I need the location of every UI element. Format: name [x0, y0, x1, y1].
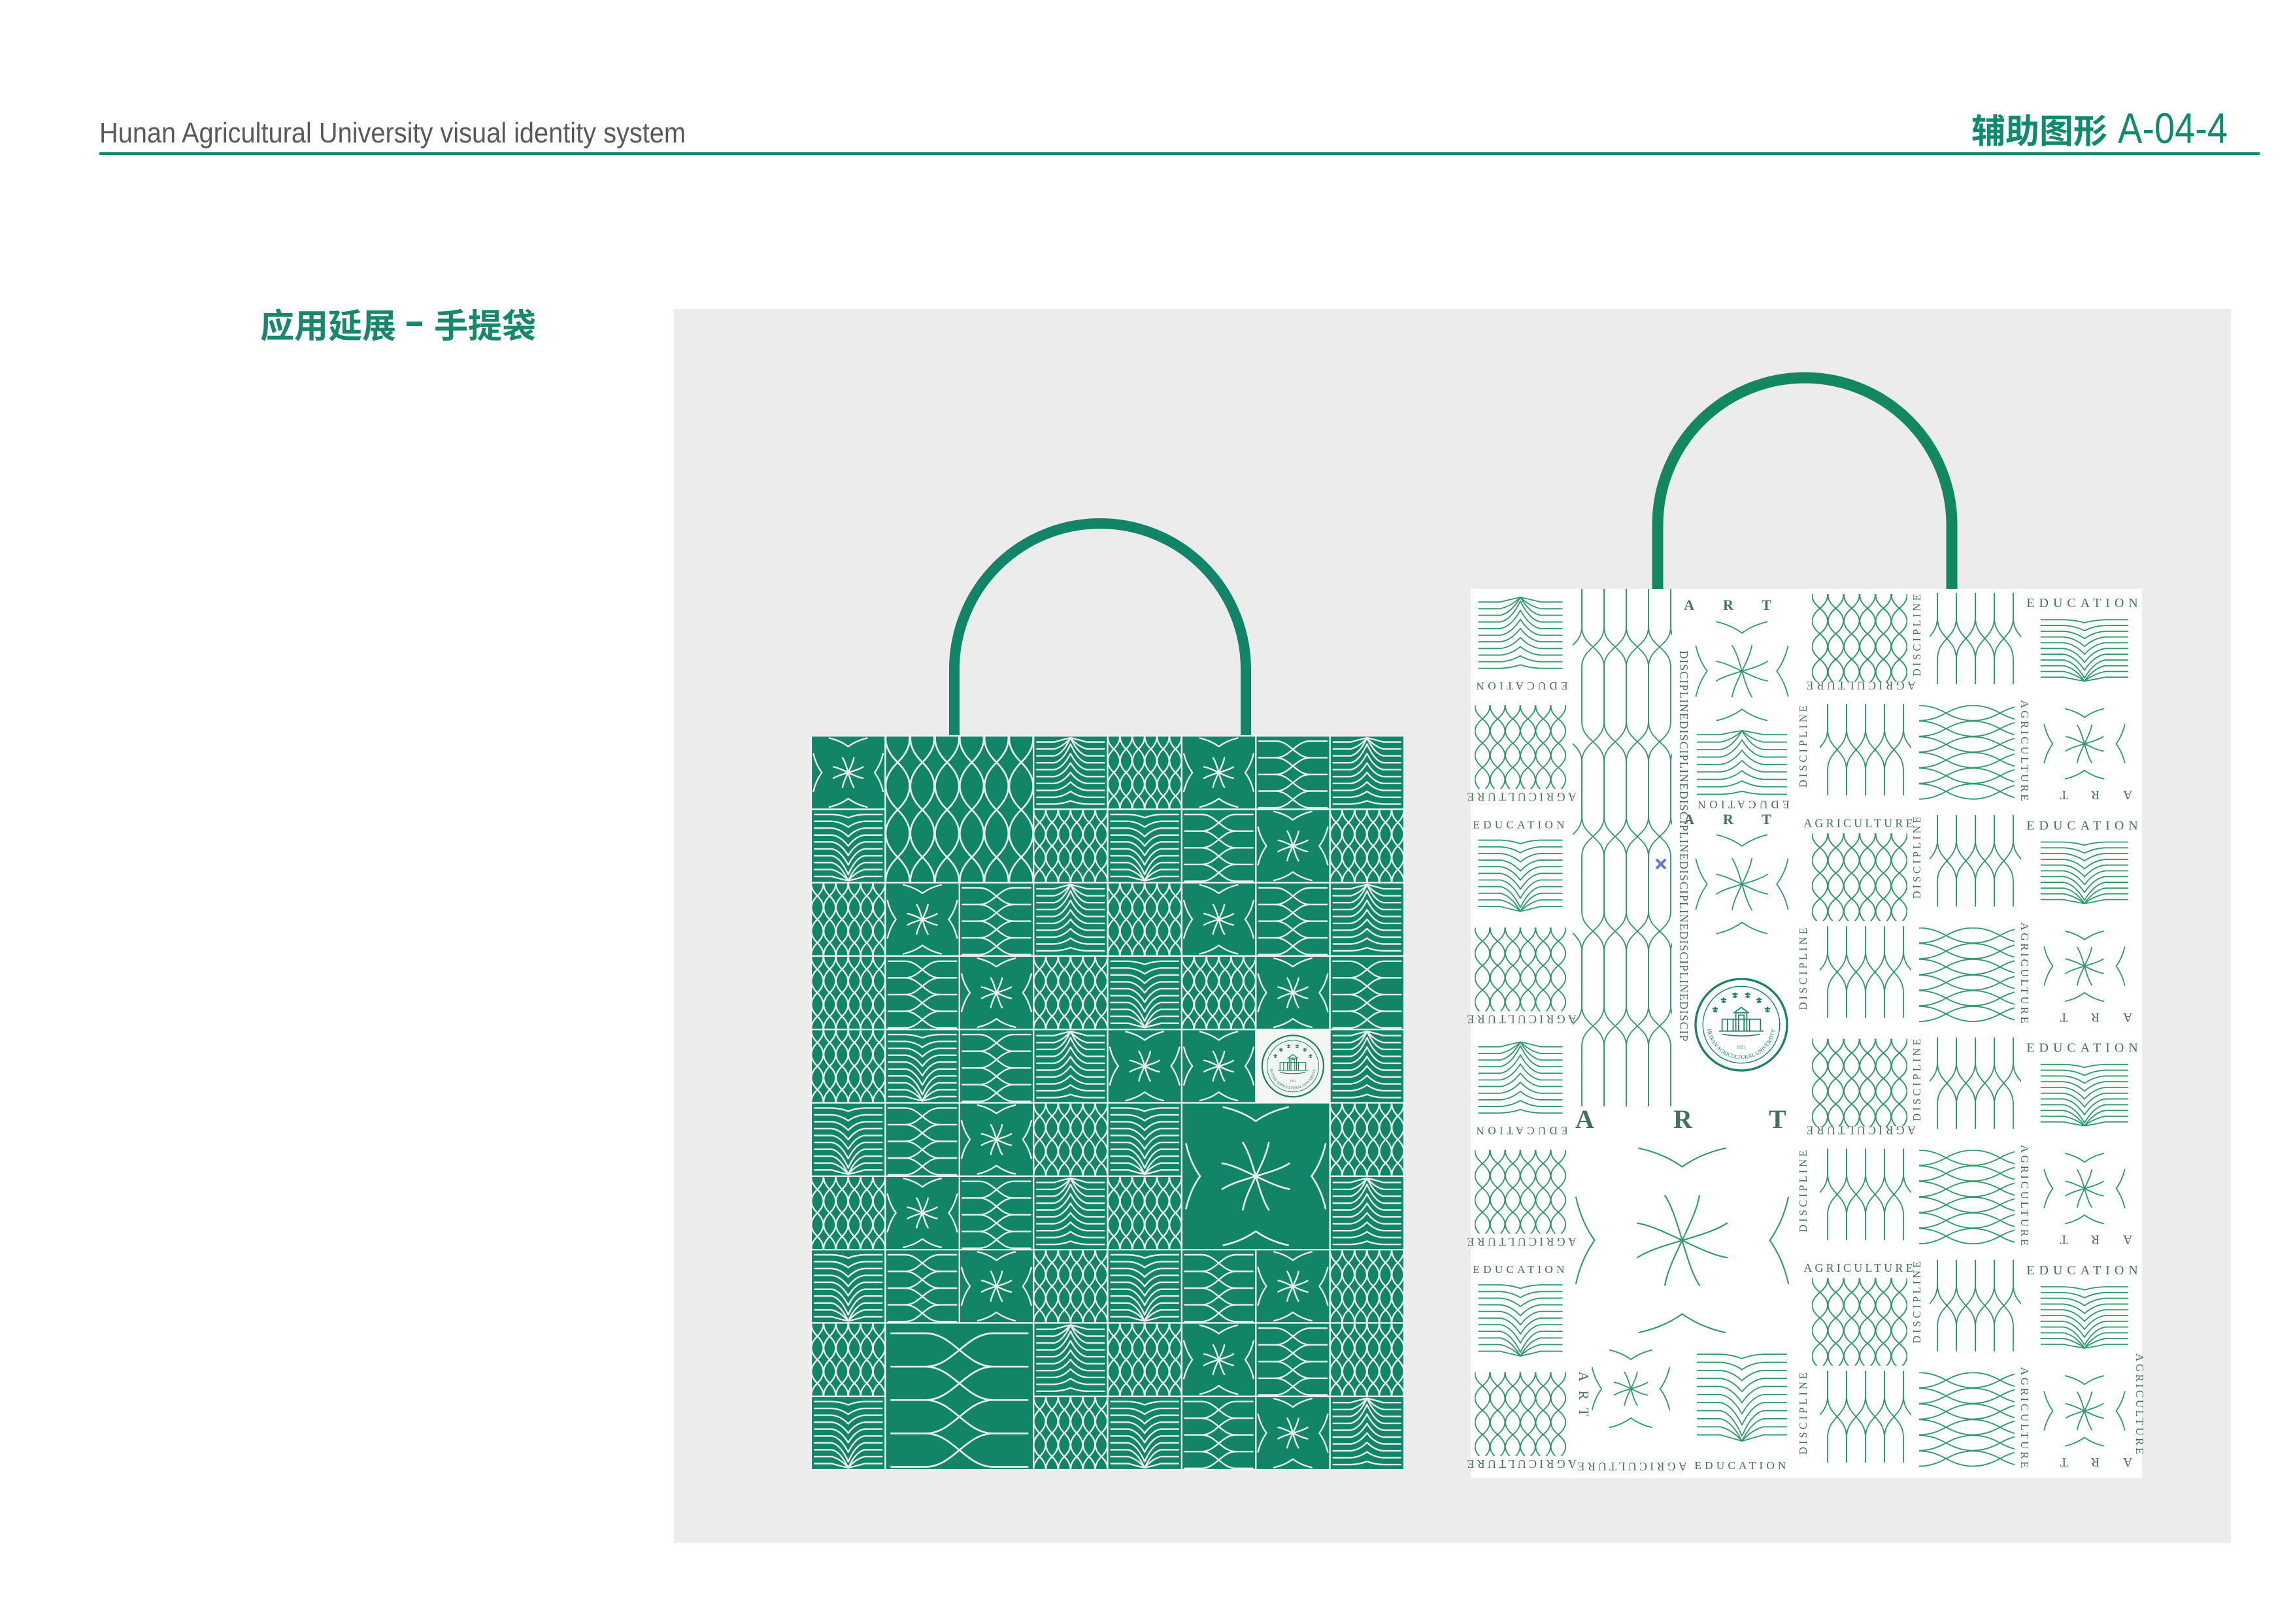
svg-text:AGRICULTURE: AGRICULTURE	[1803, 679, 1916, 692]
svg-text:DISCIPLINE: DISCIPLINE	[1911, 591, 1923, 676]
svg-text:EDUCATION: EDUCATION	[1694, 1459, 1789, 1472]
svg-text:AGRICULTURE: AGRICULTURE	[1575, 1460, 1687, 1473]
svg-text:AGRICULTURE: AGRICULTURE	[2018, 922, 2031, 1025]
svg-text:DISCIPLINE: DISCIPLINE	[1797, 703, 1809, 787]
svg-text:ART: ART	[1684, 597, 1800, 613]
svg-text:AGRICULTURE: AGRICULTURE	[1803, 1261, 1916, 1274]
svg-text:ART: ART	[1576, 1372, 1592, 1426]
svg-text:DISCIPLINEDISCIPLINEDISCIPLINE: DISCIPLINEDISCIPLINEDISCIPLINEDISCIPLINE…	[1677, 650, 1690, 1042]
svg-text:DISCIPLINE: DISCIPLINE	[1911, 1036, 1923, 1121]
svg-text:DISCIPLINE: DISCIPLINE	[1797, 1148, 1809, 1233]
svg-text:DISCIPLINE: DISCIPLINE	[1797, 1370, 1809, 1455]
svg-text:AGRICULTURE: AGRICULTURE	[1464, 1235, 1577, 1248]
svg-text:AGRICULTURE: AGRICULTURE	[1803, 816, 1916, 829]
svg-text:AGRICULTURE: AGRICULTURE	[2134, 1353, 2146, 1457]
svg-text:AGRICULTURE: AGRICULTURE	[1464, 1013, 1577, 1026]
svg-text:AGRICULTURE: AGRICULTURE	[2018, 1367, 2031, 1470]
svg-text:EDUCATION: EDUCATION	[1694, 799, 1789, 811]
svg-text:DISCIPLINE: DISCIPLINE	[1911, 814, 1923, 899]
svg-text:ART: ART	[2037, 787, 2133, 802]
svg-text:AGRICULTURE: AGRICULTURE	[1464, 790, 1577, 803]
svg-text:AGRICULTURE: AGRICULTURE	[2018, 1145, 2031, 1248]
svg-text:EDUCATION: EDUCATION	[1473, 818, 1567, 831]
svg-text:DISCIPLINE: DISCIPLINE	[1911, 1259, 1923, 1344]
svg-text:AGRICULTURE: AGRICULTURE	[1803, 1124, 1916, 1137]
svg-text:EDUCATION: EDUCATION	[2026, 818, 2142, 833]
svg-text:A: A	[1575, 1104, 1594, 1134]
svg-text:ART: ART	[2037, 1455, 2133, 1469]
svg-text:EDUCATION: EDUCATION	[2026, 1263, 2142, 1278]
svg-text:Hunan Agricultural University: Hunan Agricultural University visual ide…	[99, 117, 686, 149]
svg-text:T: T	[1769, 1104, 1786, 1134]
svg-text:1951: 1951	[1737, 1044, 1747, 1050]
svg-text:ART: ART	[1684, 811, 1800, 827]
svg-text:1951: 1951	[1290, 1080, 1296, 1084]
svg-text:ART: ART	[2037, 1233, 2133, 1247]
svg-text:AGRICULTURE: AGRICULTURE	[1464, 1457, 1577, 1470]
svg-text:EDUCATION: EDUCATION	[1473, 1263, 1567, 1276]
svg-text:A-04-4: A-04-4	[2118, 104, 2228, 152]
svg-text:EDUCATION: EDUCATION	[2026, 1041, 2142, 1055]
svg-text:ART: ART	[2037, 1010, 2133, 1024]
svg-text:DISCIPLINE: DISCIPLINE	[1797, 925, 1809, 1010]
svg-text:EDUCATION: EDUCATION	[2026, 596, 2142, 610]
svg-text:AGRICULTURE: AGRICULTURE	[2018, 700, 2031, 803]
svg-text:EDUCATION: EDUCATION	[1473, 1124, 1567, 1136]
svg-text:EDUCATION: EDUCATION	[1473, 680, 1567, 692]
svg-text:R: R	[1673, 1104, 1693, 1134]
